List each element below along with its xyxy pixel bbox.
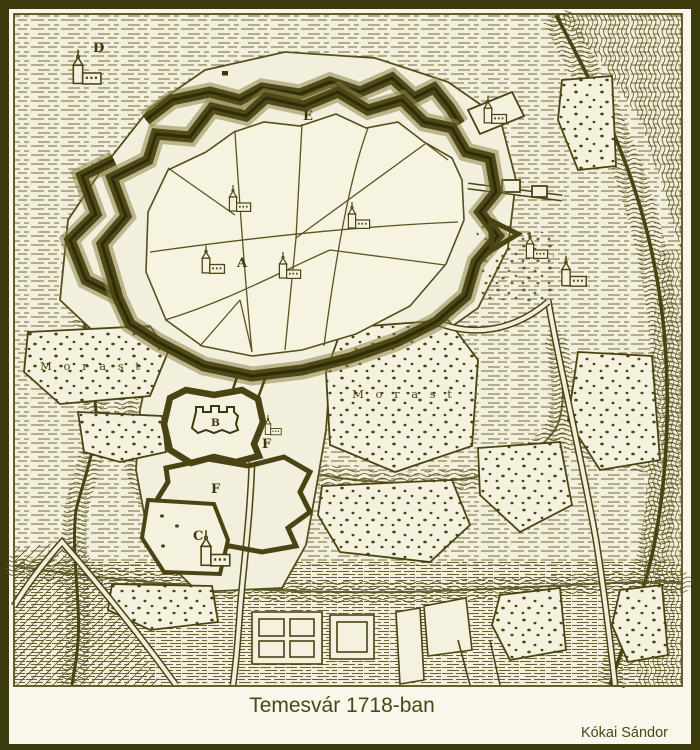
map-author: Kókai Sándor [581, 725, 668, 741]
label-c: C [193, 529, 203, 544]
garden-slanted-1 [396, 608, 424, 684]
label-morast-west: M o r a s t [40, 359, 144, 373]
map-page: M o r a s t M o r a s t [0, 0, 700, 750]
citadel: B [164, 390, 263, 463]
map-drawing: M o r a s t M o r a s t [14, 14, 682, 686]
label-f-upper: F [262, 437, 272, 452]
temesvar-map-svg: M o r a s t M o r a s t [0, 0, 700, 750]
label-b: B [211, 417, 220, 429]
label-morast-center: M o r a s t [352, 387, 456, 401]
label-a: A [236, 256, 248, 271]
label-e: E [303, 109, 313, 124]
garden-slanted-2 [424, 598, 472, 656]
label-f-lower: F [211, 482, 221, 497]
map-title: Temesvár 1718-ban [249, 694, 435, 717]
label-d: D [93, 41, 104, 56]
island-west-small [78, 412, 166, 462]
